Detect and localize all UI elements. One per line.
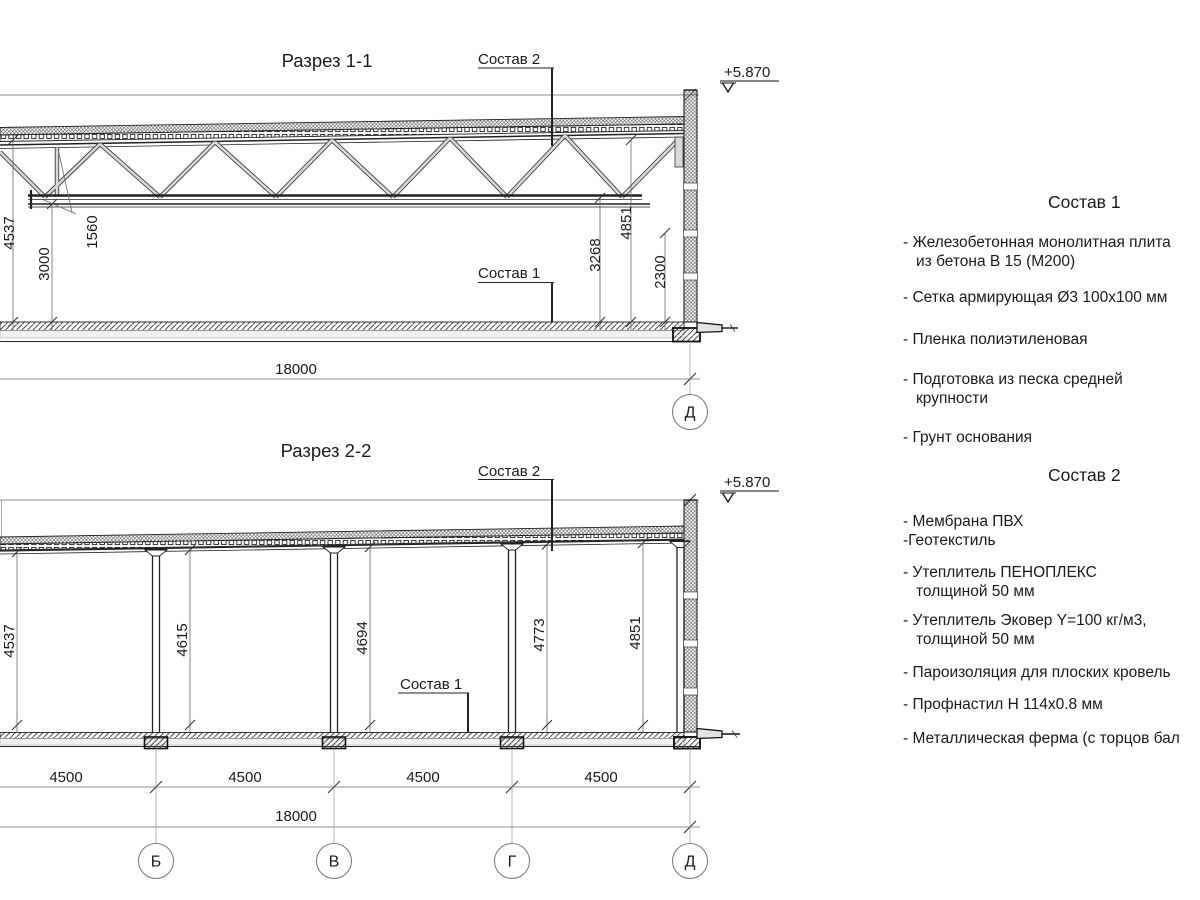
material-item: - Профнастил Н 114х0.8 мм [903, 696, 1200, 715]
sostav1-title: Состав 1 [1048, 192, 1121, 213]
material-item: - Подготовка из песка средней крупности [903, 371, 1200, 408]
material-item: - Грунт основания [903, 429, 1200, 448]
material-item: - Пленка полиэтиленовая [903, 331, 1200, 350]
material-item: - Мембрана ПВХ -Геотекстиль [903, 513, 1200, 550]
material-item: - Утеплитель Эковер Y=100 кг/м3, толщино… [903, 612, 1200, 649]
sostav2-title: Состав 2 [1048, 465, 1121, 486]
drawing-sheet: Разрез 1-1 [0, 0, 1200, 900]
material-item: - Металлическая ферма (с торцов бал [903, 730, 1200, 749]
material-item: - Пароизоляция для плоских кровель [903, 664, 1200, 683]
material-lists: Состав 1 - Железобетонная монолитная пли… [0, 0, 1200, 900]
material-item: - Железобетонная монолитная плита из бет… [903, 234, 1200, 271]
material-item: - Сетка армирующая Ø3 100х100 мм [903, 289, 1200, 308]
material-item: - Утеплитель ПЕНОПЛЕКС толщиной 50 мм [903, 564, 1200, 601]
